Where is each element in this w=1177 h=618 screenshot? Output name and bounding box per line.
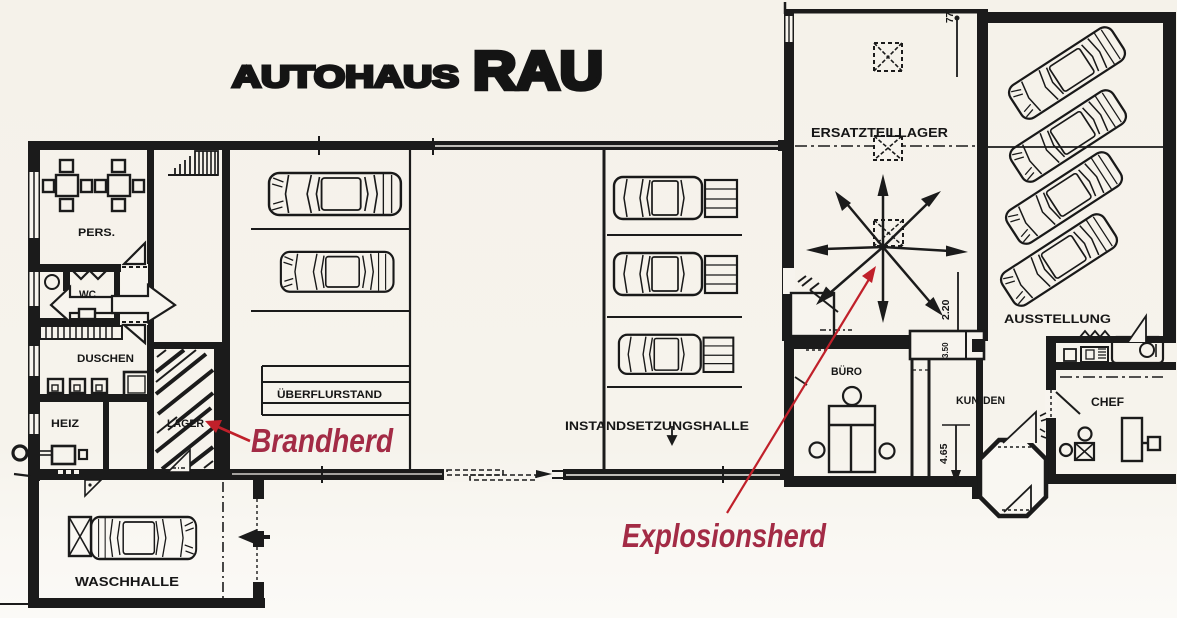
svg-text:Explosionsherd: Explosionsherd (622, 517, 827, 554)
svg-text:Brandherd: Brandherd (251, 422, 394, 459)
svg-text:BÜRO: BÜRO (831, 365, 862, 378)
svg-text:DEN: DEN (983, 395, 1005, 407)
svg-text:PERS.: PERS. (78, 227, 115, 239)
svg-text:ÜBERFLURSTAND: ÜBERFLURSTAND (277, 388, 382, 401)
svg-text:AUSSTELLUNG: AUSSTELLUNG (1004, 312, 1111, 326)
svg-text:KUN: KUN (956, 395, 979, 407)
svg-text:WASCHHALLE: WASCHHALLE (75, 574, 179, 589)
svg-text:2.20: 2.20 (940, 299, 952, 320)
svg-text:WC: WC (79, 289, 96, 301)
svg-text:77: 77 (945, 11, 956, 23)
svg-text:DUSCHEN: DUSCHEN (77, 353, 134, 365)
svg-text:HEIZ: HEIZ (51, 418, 79, 430)
svg-text:ERSATZTEILLAGER: ERSATZTEILLAGER (811, 125, 949, 140)
svg-text:3.50: 3.50 (941, 342, 950, 358)
svg-text:INSTANDSETZUNGSHALLE: INSTANDSETZUNGSHALLE (565, 419, 749, 433)
svg-text:RAU: RAU (473, 41, 603, 101)
svg-text:AUTOHAUS: AUTOHAUS (232, 59, 459, 94)
svg-text:LAGER: LAGER (167, 418, 204, 430)
svg-text:CHEF: CHEF (1091, 395, 1124, 409)
svg-text:4.65: 4.65 (938, 443, 950, 464)
